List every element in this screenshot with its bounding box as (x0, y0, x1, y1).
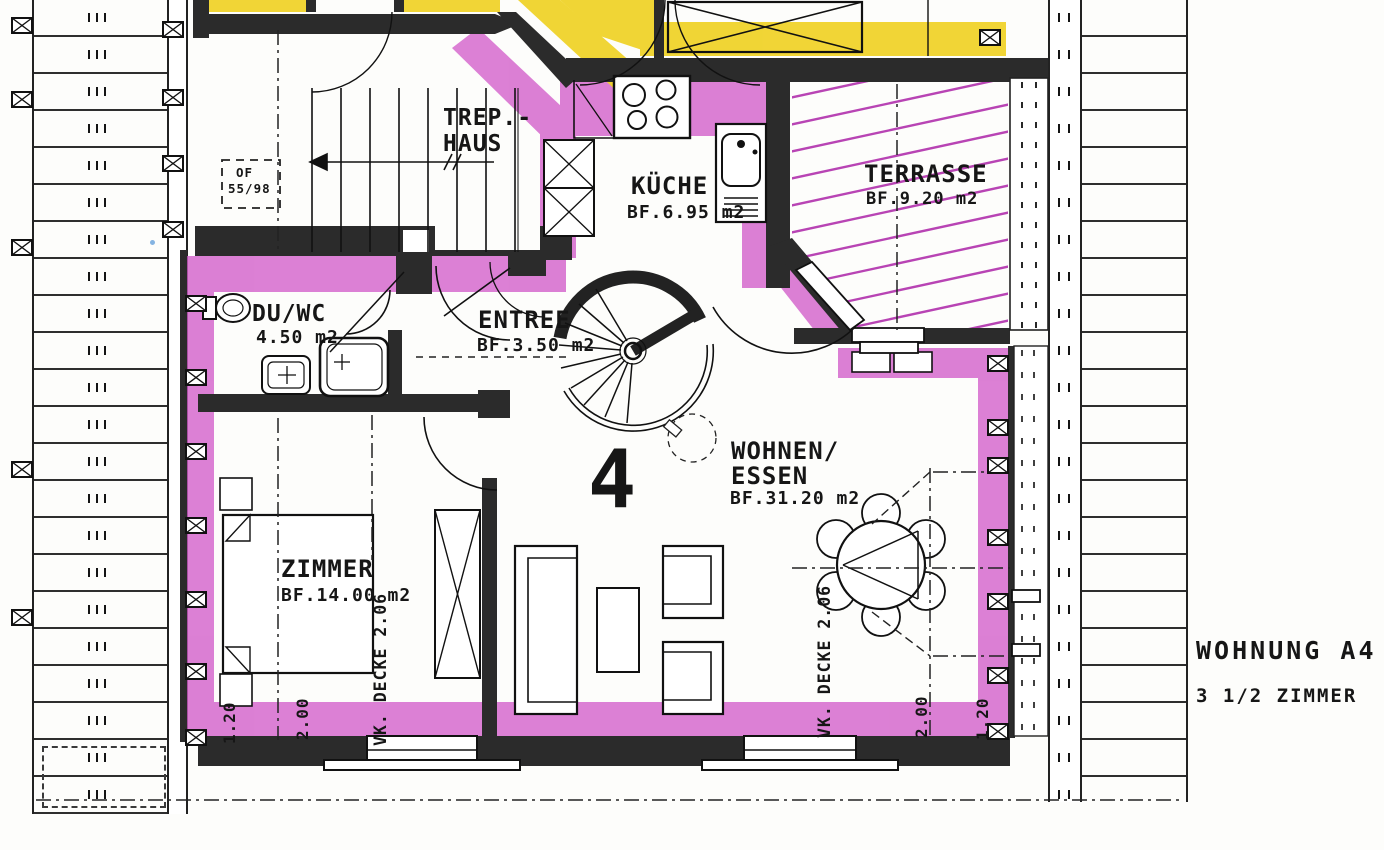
ceiling-height-note-left: VK. DECKE 2.06 (372, 593, 389, 746)
dimension-right-inner: 2.00 (914, 695, 931, 738)
window-sill (702, 760, 898, 770)
ceiling-height-note-right: VK. DECKE 2.06 (816, 585, 833, 738)
room-label-terrasse: TERRASSE (864, 162, 988, 187)
room-label-kueche: KÜCHE (631, 174, 708, 199)
nightstand (220, 478, 252, 510)
stove (614, 76, 690, 138)
room-label-trephaus-line2: HAUS (443, 132, 502, 156)
room-label-zimmer: ZIMMER (281, 557, 374, 582)
roof-window-label-line1: OF (236, 166, 253, 179)
window-sill (324, 760, 520, 770)
dimension-left-outer: 1.20 (222, 701, 239, 744)
room-area-duwc: 4.50 m2 (256, 329, 339, 348)
room-area-zimmer: BF.14.00 m2 (281, 587, 411, 606)
armchair (663, 546, 723, 618)
dining-table-group (817, 494, 945, 636)
armchair (663, 642, 723, 714)
room-area-entree: BF.3.50 m2 (477, 337, 595, 356)
room-label-wohnen-line1: WOHNEN/ (731, 439, 839, 464)
wardrobe (435, 510, 480, 678)
unit-number: 4 (588, 438, 636, 522)
dimension-right-outer: 1.20 (975, 697, 992, 740)
room-label-wohnen-line2: ESSEN (731, 464, 808, 489)
terrasse-bench (852, 328, 924, 353)
apartment-title: WOHNUNG A4 (1196, 638, 1377, 664)
coffee-table (597, 588, 639, 672)
sketch-marks (664, 414, 716, 462)
room-label-duwc: DU/WC (252, 302, 326, 326)
room-area-terrasse: BF.9.20 m2 (866, 191, 978, 209)
washbasin (262, 356, 310, 394)
room-area-kueche: BF.6.95 m2 (627, 204, 745, 223)
room-label-trephaus-line1: TREP.- (443, 106, 532, 130)
plan-linework (0, 0, 1384, 850)
toilet (203, 294, 250, 322)
dimension-left-inner: 2.00 (295, 697, 312, 740)
terrasse-window-frame (1010, 78, 1048, 736)
room-label-entree: ENTREE (478, 308, 571, 333)
room-area-wohnen: BF.31.20 m2 (730, 490, 860, 509)
apartment-size: 3 1/2 ZIMMER (1196, 687, 1357, 707)
sofa (515, 546, 577, 714)
roof-window-label-line2: 55/98 (228, 182, 271, 195)
floor-plan-canvas: TREP.- HAUS KÜCHE BF.6.95 m2 TERRASSE BF… (0, 0, 1384, 850)
